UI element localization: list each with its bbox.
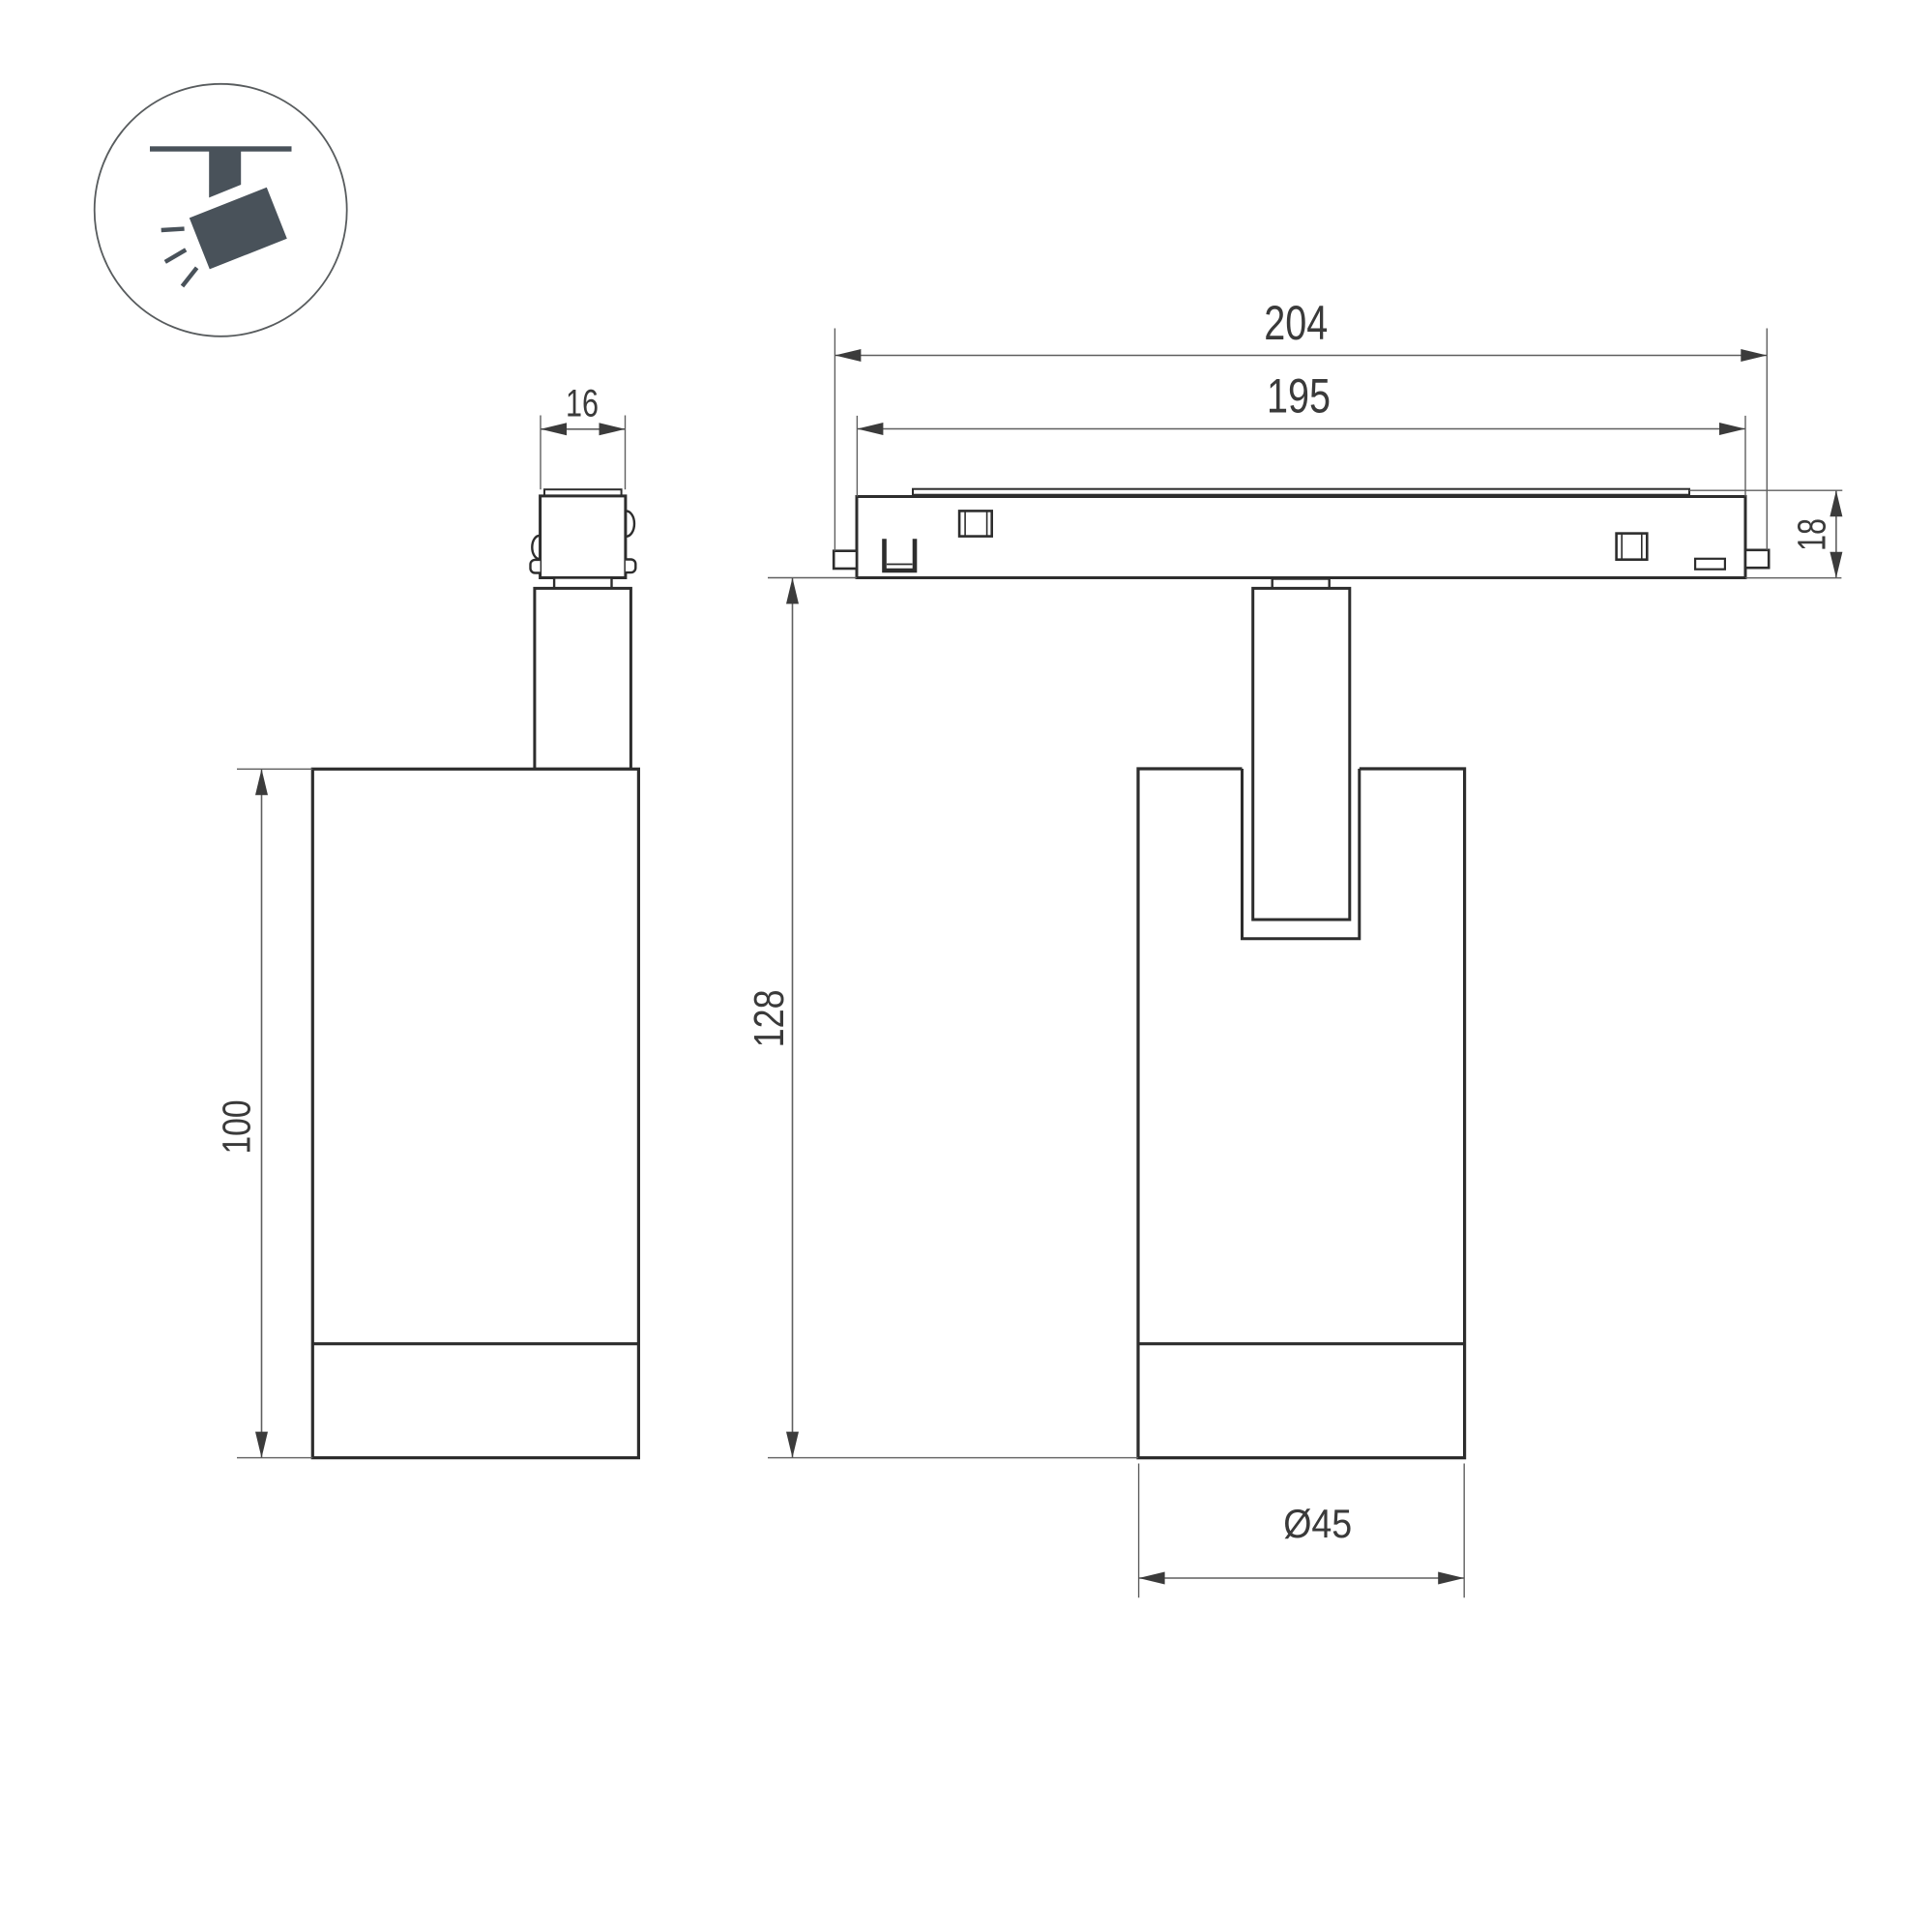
svg-text:128: 128 bbox=[746, 989, 793, 1047]
svg-text:16: 16 bbox=[566, 383, 599, 425]
svg-text:195: 195 bbox=[1267, 367, 1331, 423]
svg-text:100: 100 bbox=[215, 1100, 259, 1155]
svg-text:18: 18 bbox=[1789, 518, 1833, 551]
svg-text:Ø45: Ø45 bbox=[1283, 1501, 1352, 1546]
svg-text:204: 204 bbox=[1264, 295, 1328, 350]
